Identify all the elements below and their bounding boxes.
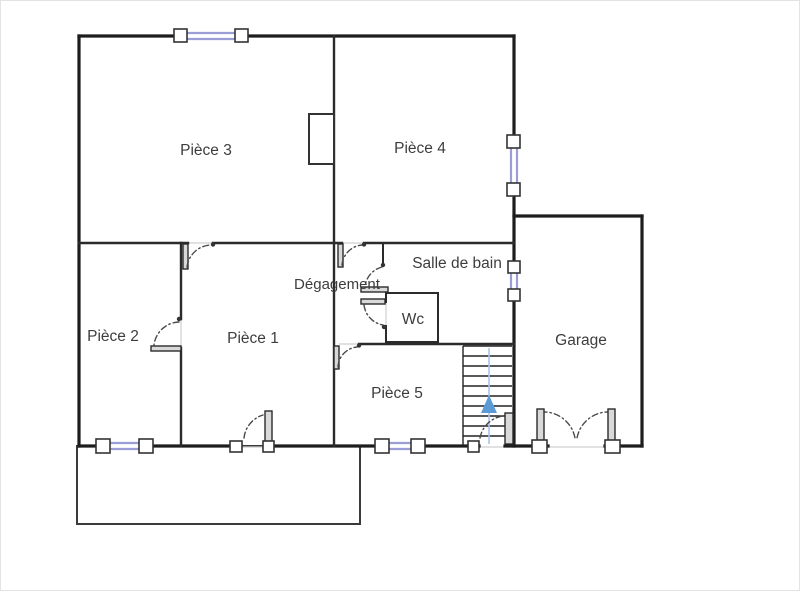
window-right-lower	[508, 261, 520, 301]
window-bottom-left	[96, 439, 153, 453]
room-label-degagement: Dégagement	[294, 276, 381, 293]
terrace-outline	[77, 446, 360, 524]
exterior-walls	[79, 36, 642, 446]
door-piece2	[151, 317, 181, 351]
up-arrow-icon	[481, 395, 497, 413]
floor-plan-canvas: Pièce 3 Pièce 4 Pièce 2 Pièce 1 Pièce 5 …	[0, 0, 800, 591]
room-label-piece-3: Pièce 3	[180, 142, 232, 159]
floor-plan-drawing: Pièce 3 Pièce 4 Pièce 2 Pièce 1 Pièce 5 …	[1, 1, 800, 591]
window-top	[174, 29, 248, 42]
door-piece5	[334, 343, 361, 369]
window-bottom-piece5	[375, 439, 425, 453]
room-label-salle-de-bain: Salle de bain	[412, 255, 502, 272]
door-wc	[361, 299, 386, 329]
door-piece4-to-degagement	[338, 242, 366, 267]
window-right-upper	[507, 135, 520, 196]
door-piece3-to-piece1	[183, 242, 215, 269]
room-label-garage: Garage	[555, 332, 607, 349]
room-labels: Pièce 3 Pièce 4 Pièce 2 Pièce 1 Pièce 5 …	[87, 140, 607, 402]
room-label-piece-5: Pièce 5	[371, 385, 423, 402]
room-label-piece-4: Pièce 4	[394, 140, 446, 157]
room-label-wc: Wc	[402, 311, 425, 328]
chimney-block	[309, 114, 334, 164]
room-label-piece-2: Pièce 2	[87, 328, 139, 345]
room-label-piece-1: Pièce 1	[227, 330, 279, 347]
interior-walls	[79, 36, 514, 446]
